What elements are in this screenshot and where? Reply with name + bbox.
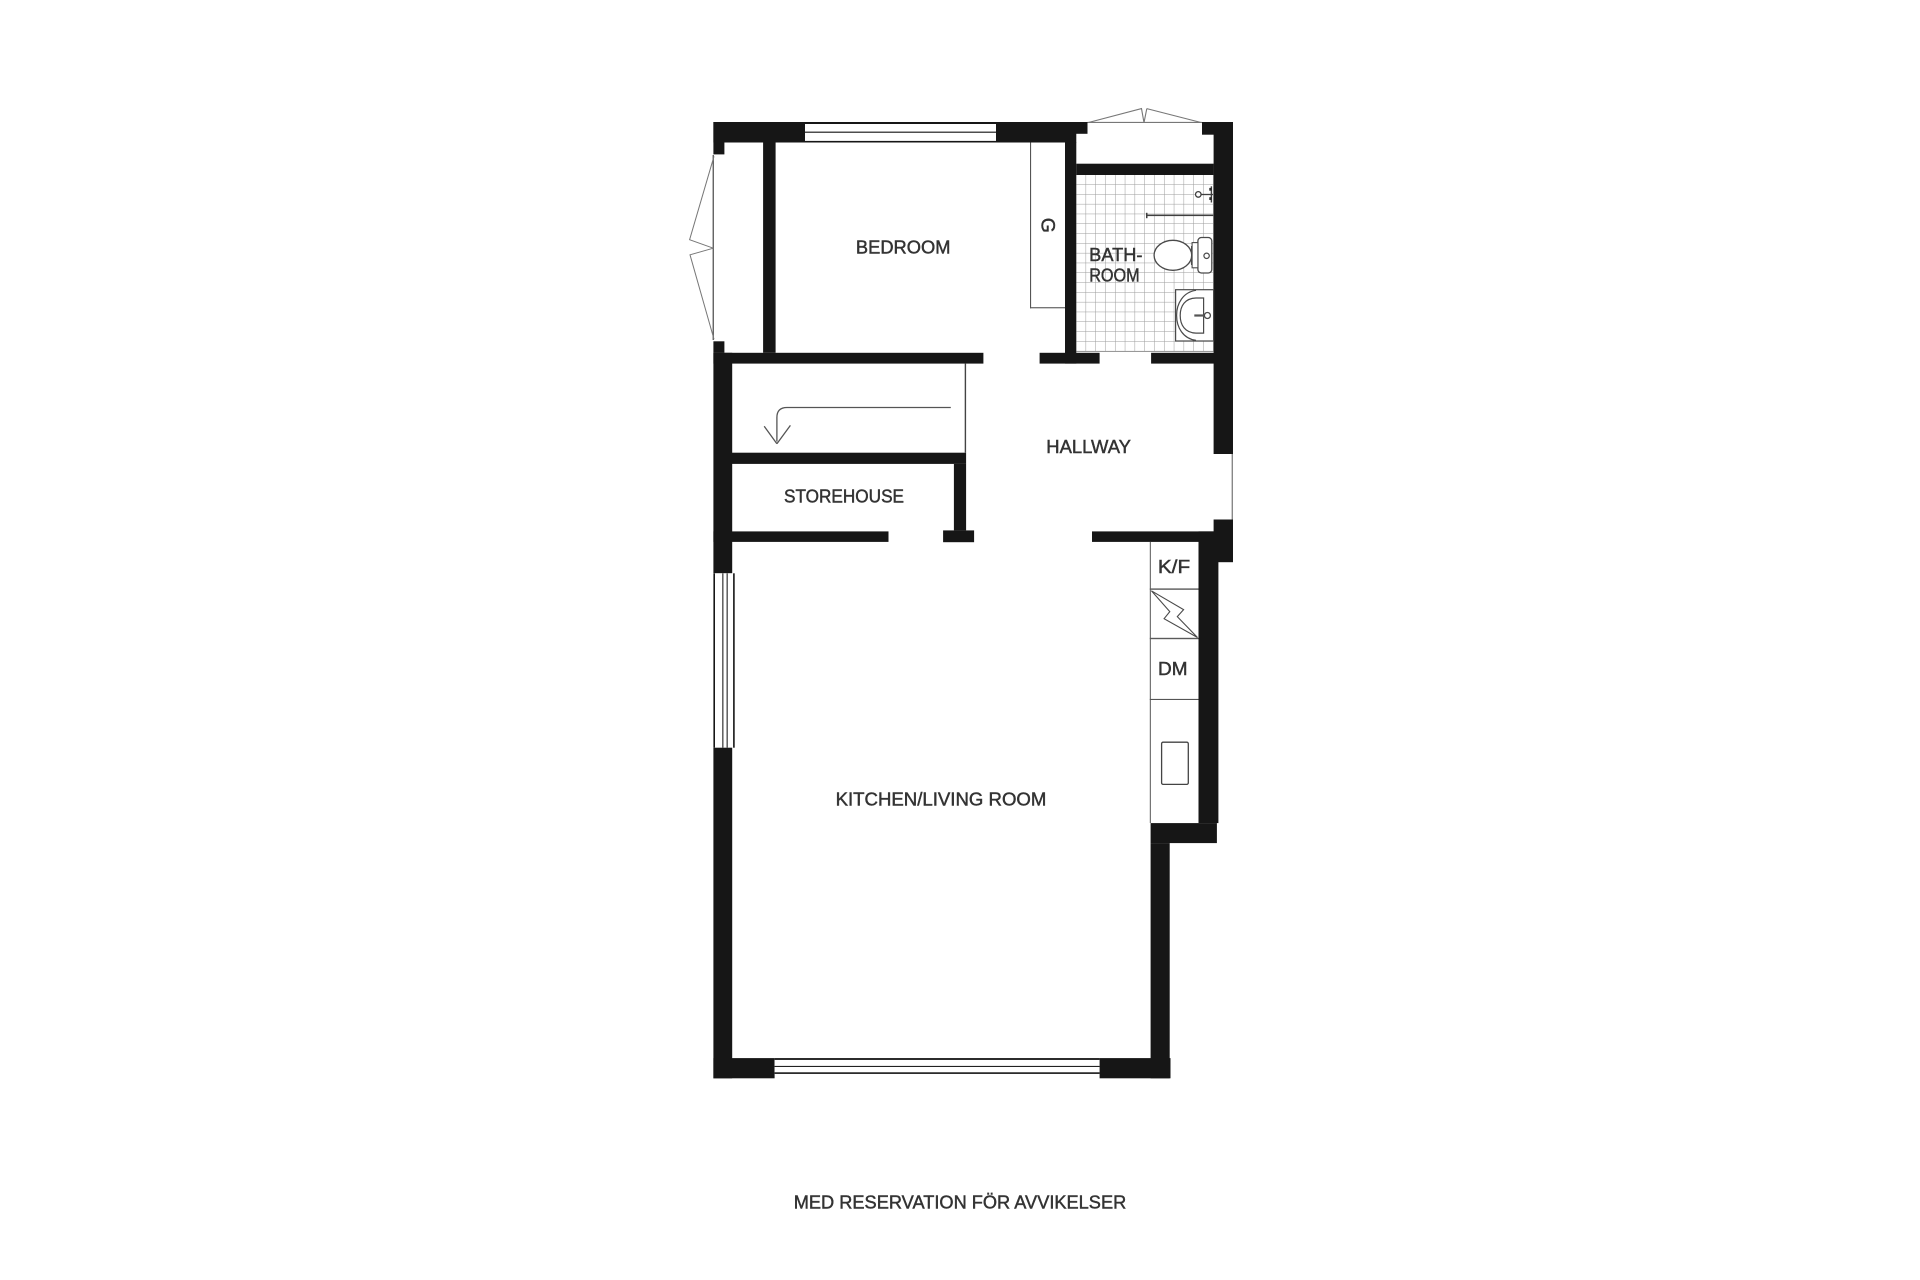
svg-text:K/F: K/F [1158,557,1190,577]
svg-text:DM: DM [1158,659,1188,679]
svg-text:BATH-: BATH- [1089,245,1142,265]
svg-text:ROOM: ROOM [1089,266,1140,286]
svg-text:HALLWAY: HALLWAY [1046,437,1131,457]
svg-text:MED RESERVATION FÖR AVVIKELSER: MED RESERVATION FÖR AVVIKELSER [794,1191,1127,1212]
svg-text:STOREHOUSE: STOREHOUSE [784,487,904,507]
svg-text:G: G [1037,218,1059,233]
svg-text:KITCHEN/LIVING ROOM: KITCHEN/LIVING ROOM [836,790,1047,810]
svg-text:BEDROOM: BEDROOM [856,238,951,258]
